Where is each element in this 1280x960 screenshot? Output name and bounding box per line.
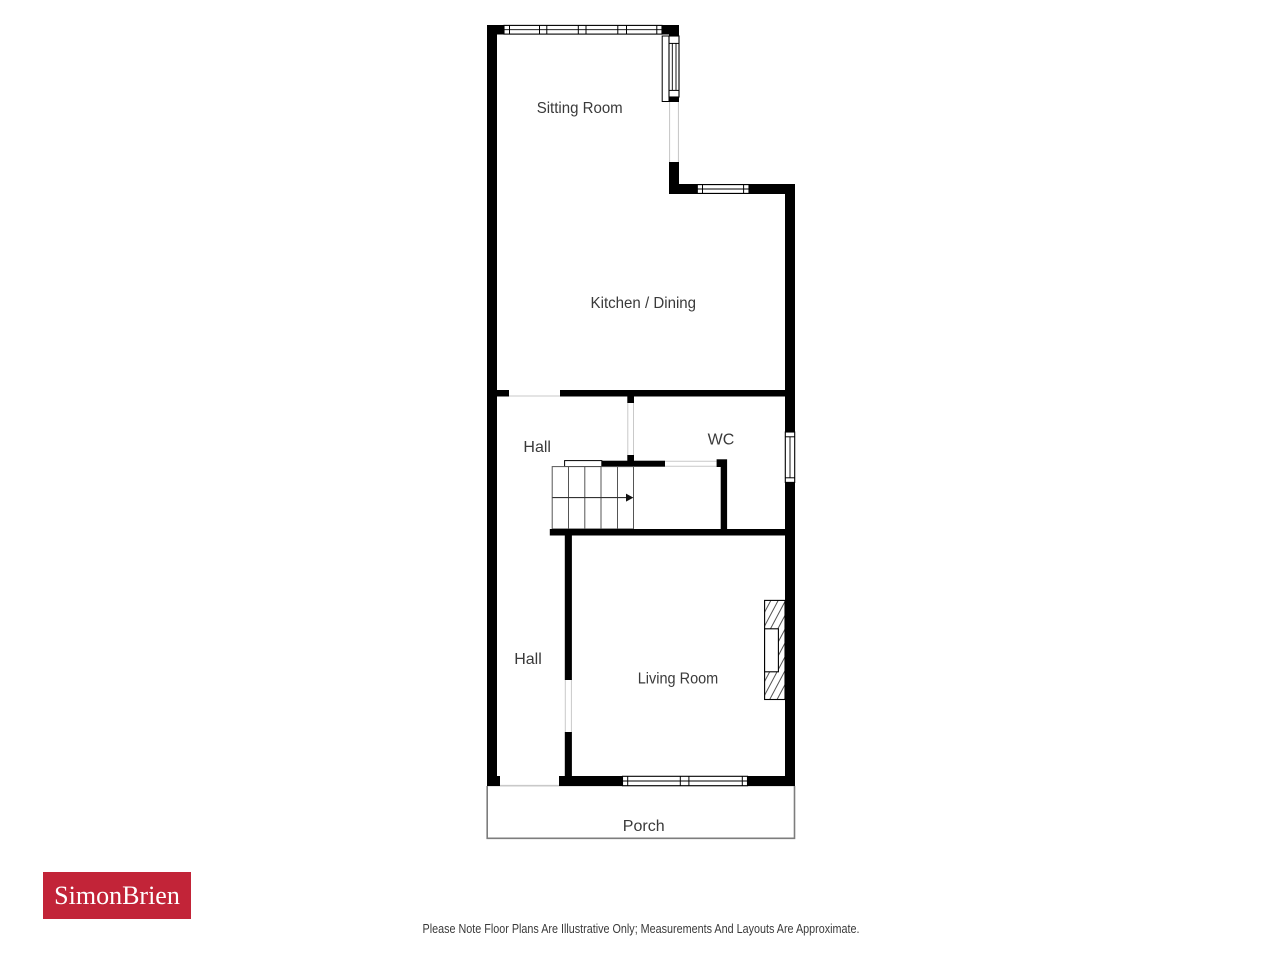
svg-text:Living Room: Living Room: [638, 670, 719, 687]
svg-text:Sitting Room: Sitting Room: [537, 100, 623, 117]
svg-text:Hall: Hall: [514, 651, 542, 668]
svg-text:Kitchen / Dining: Kitchen / Dining: [591, 295, 697, 312]
svg-text:WC: WC: [708, 432, 735, 449]
svg-text:Please Note Floor Plans Are Il: Please Note Floor Plans Are Illustrative…: [423, 921, 860, 936]
svg-text:Porch: Porch: [623, 818, 665, 835]
svg-text:Hall: Hall: [523, 439, 551, 456]
